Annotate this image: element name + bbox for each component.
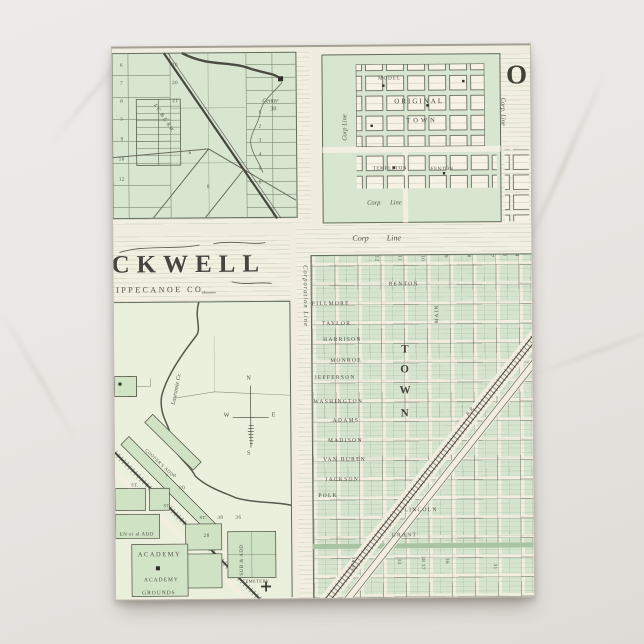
- street-label: JEFFERSON: [314, 376, 355, 382]
- corp-line-label: Corp Line: [342, 114, 349, 141]
- plat-label: MODEL: [378, 76, 401, 81]
- street-label: TAYLOR: [322, 322, 351, 328]
- lot-number: 5: [259, 166, 262, 171]
- lot-number: 7: [120, 82, 123, 87]
- block-number: 7: [488, 255, 493, 258]
- big-town-letter: O: [400, 364, 409, 375]
- county-label: TIPPECANOE CO.: [113, 286, 207, 295]
- plat-label: ORIGINAL: [394, 98, 444, 105]
- block-number: 36: [444, 558, 449, 564]
- lot-number: 7: [165, 474, 168, 479]
- lot-number: 8: [173, 474, 176, 479]
- town-title: CKWELL: [113, 251, 266, 277]
- corp-line-label: Corp Line: [352, 234, 401, 242]
- corp-line-label: Corp Line: [367, 200, 402, 207]
- corporation-line-label: Corporation Line: [301, 265, 308, 327]
- block-number: 38 37: [420, 556, 425, 570]
- grounds-label: GROUNDS: [142, 591, 176, 597]
- addition-label: TEMPLETON: [373, 166, 407, 171]
- block-number: 5: [501, 254, 506, 257]
- northwest-map-drawing: [112, 52, 311, 226]
- lot-number: 1: [258, 110, 261, 115]
- town-name-initial: O: [506, 61, 527, 88]
- street-label: HARRISON: [323, 338, 362, 344]
- addition-label: EN et al ADD: [120, 532, 154, 537]
- street-suffix: ST.: [131, 483, 139, 488]
- compass-n: N: [246, 376, 250, 382]
- compass-e: E: [272, 412, 276, 418]
- street-label: MADISON: [328, 439, 363, 445]
- academy-label: ACADEMY: [144, 578, 179, 584]
- postcard: I. C. & L. R.W. Center 30 20 20 21 8 7 6…: [111, 43, 535, 600]
- big-town-letter: T: [401, 344, 408, 355]
- street-label-vertical: MAIN: [435, 305, 440, 324]
- street-label: BENTON: [389, 282, 419, 288]
- lot-number: 30: [218, 516, 224, 521]
- lot-number: 6: [189, 151, 192, 156]
- lot-number: 6: [259, 180, 262, 185]
- addition-label: SUB & ADD: [240, 544, 245, 575]
- lot-number: 2: [258, 124, 261, 129]
- addition-label: FENTON: [431, 167, 454, 172]
- lot-number: 6: [120, 64, 123, 69]
- lot-number: 4: [259, 152, 262, 157]
- street-label: GRANT: [392, 533, 417, 539]
- map-panel-northeast: MODEL ORIGINAL TOWN TEMPLETON FENTON Cor…: [322, 53, 531, 231]
- block-number: 4: [513, 253, 518, 256]
- marble-vein: [516, 318, 644, 381]
- northeast-map-drawing: [322, 53, 531, 231]
- place-label: Center: [262, 98, 278, 104]
- street-label: ADAMS: [333, 419, 359, 425]
- block-number: 31: [492, 564, 497, 570]
- compass-w: W: [224, 413, 230, 419]
- lot-number: 21: [172, 99, 178, 104]
- street-suffix: ST.: [163, 504, 171, 509]
- lot-number: 36: [236, 516, 242, 521]
- lot-number: 12: [119, 178, 125, 183]
- lot-number: 20: [172, 81, 178, 86]
- lot-number: 9: [121, 138, 124, 143]
- block-number: 9: [442, 255, 447, 258]
- street-label: FILLMORE: [312, 302, 350, 308]
- lot-number: 8: [207, 185, 210, 190]
- block-number: 33: [396, 558, 401, 564]
- block-number: 12: [373, 256, 378, 262]
- cemetery-label: CEMETERY: [242, 579, 269, 584]
- compass-s: S: [247, 451, 250, 457]
- academy-label: ACADEMY: [138, 552, 181, 559]
- street-label: POLK: [318, 494, 338, 500]
- street-label: MONROE: [330, 359, 362, 365]
- lot-number: 30: [270, 106, 276, 112]
- street-label: WASHINGTON: [314, 400, 364, 406]
- school-block: [114, 376, 136, 396]
- lot-number: 20: [179, 486, 185, 491]
- street-suffix: ST.: [200, 516, 208, 521]
- lot-number: 20: [172, 63, 178, 68]
- marble-vein: [0, 310, 82, 450]
- big-town-letter: W: [400, 385, 411, 396]
- map-panel-southwest: CKWELL TIPPECANOE CO. Lauramie Cr. N S W…: [113, 235, 293, 599]
- map-panel-northwest: I. C. & L. R.W. Center 30 20 20 21 8 7 6…: [112, 52, 311, 226]
- block-number: 34 35: [350, 557, 355, 571]
- block-number: 11: [396, 255, 401, 261]
- map-panel-southeast: Corp Line Corporation Line BENTON FILLMO…: [296, 227, 534, 598]
- lot-number: 8: [120, 100, 123, 105]
- street-label: VAN BUREN: [323, 458, 366, 464]
- street-label: JACKSON: [325, 478, 359, 484]
- block-number: 10: [419, 255, 424, 261]
- lot-number: 28: [204, 534, 210, 539]
- plat-label: TOWN: [406, 118, 437, 125]
- lot-number: 3: [259, 138, 262, 143]
- shaded-street: [313, 542, 534, 549]
- corp-line-label: Corp. Line: [499, 98, 506, 126]
- marble-background: I. C. & L. R.W. Center 30 20 20 21 8 7 6…: [0, 0, 644, 644]
- street-label: LINCOLN: [404, 508, 437, 514]
- edge-blocks: [505, 149, 530, 221]
- lot-number: 5: [120, 118, 123, 123]
- building-square: [278, 76, 283, 81]
- big-town-letter: N: [401, 408, 409, 419]
- lot-number: 10: [119, 158, 125, 163]
- block-number: 8: [465, 255, 470, 258]
